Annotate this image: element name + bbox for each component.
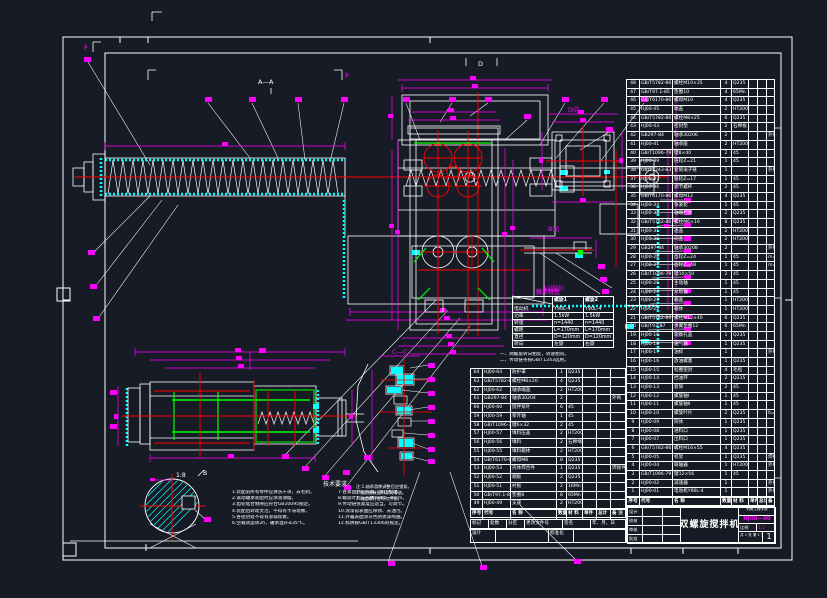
table-cell: HT200 xyxy=(732,106,749,114)
table-cell: HJ00-52 xyxy=(483,474,511,482)
table-cell xyxy=(749,262,758,270)
bom-l-header-qty: 数量 xyxy=(557,510,567,519)
table-row: 6GB/T5782-86螺栓M16×554Q235 xyxy=(627,444,774,453)
table-cell: 键12×56 xyxy=(673,471,721,479)
table-cell: 13 xyxy=(627,384,640,392)
table-cell xyxy=(758,176,767,184)
table-cell: 29 xyxy=(627,245,640,253)
table-cell: 45 xyxy=(567,422,583,430)
table-cell xyxy=(611,500,625,508)
table-cell: 密封垫 xyxy=(673,123,721,131)
table-row: 42GB297-84轴承302062外购 xyxy=(627,131,774,140)
table-cell xyxy=(767,341,774,349)
table-cell: 轴承端盖 xyxy=(511,387,557,395)
table-cell xyxy=(758,132,767,140)
table-cell: 63 xyxy=(471,378,483,386)
table-cell: 轴承30208 xyxy=(673,245,721,253)
table-cell xyxy=(749,271,758,279)
table-cell: 12 xyxy=(627,393,640,401)
table-cell: 8 xyxy=(721,219,732,227)
table-cell xyxy=(767,193,774,201)
bom-right-header: 序号 代号 名 称 数量 材 料 单件 总计 备 注 xyxy=(626,497,775,506)
table-cell: 57 xyxy=(471,430,483,438)
table-cell xyxy=(749,367,758,375)
table-cell xyxy=(758,236,767,244)
table-cell: 23 xyxy=(627,297,640,305)
table-cell: 4 xyxy=(721,80,732,88)
table-cell: 11 xyxy=(627,401,640,409)
table-cell xyxy=(749,228,758,236)
table-cell: 32 xyxy=(627,219,640,227)
table-cell xyxy=(758,297,767,305)
table-cell: 28 xyxy=(627,254,640,262)
table-cell xyxy=(767,297,774,305)
table-cell xyxy=(758,262,767,270)
table-cell: 47 xyxy=(627,89,640,97)
table-cell: 2 xyxy=(721,245,732,253)
table-cell: GB/T5782-86 xyxy=(640,115,673,123)
sign-design-label: 设计 xyxy=(471,530,496,542)
table-cell: HT200 xyxy=(567,430,583,438)
table-cell: 2 xyxy=(721,150,732,158)
table-cell: 透盖 xyxy=(673,228,721,236)
table-cell: 螺栓M12×40 xyxy=(673,315,721,323)
table-cell: Q235 xyxy=(567,465,583,473)
table-cell: HJ00-62 xyxy=(483,387,511,395)
rev-mark: 标记 xyxy=(471,520,489,528)
table-row: 34HJ00-34张紧轮145 xyxy=(627,201,774,210)
table-cell xyxy=(567,395,583,403)
table-cell: HJ00-30 xyxy=(640,236,673,244)
view-b-label: B向 xyxy=(548,224,559,233)
table-cell: 44 xyxy=(627,115,640,123)
table-cell: 55 xyxy=(471,448,483,456)
table-cell xyxy=(758,419,767,427)
table-cell xyxy=(749,419,758,427)
table-cell: 外购 xyxy=(767,245,774,253)
table-cell xyxy=(758,80,767,88)
table-cell: HJ00-43 xyxy=(640,123,673,131)
table-cell: HJ00-18 xyxy=(640,341,673,349)
table-cell xyxy=(749,202,758,210)
table-cell xyxy=(749,393,758,401)
table-cell: 2 xyxy=(721,184,732,192)
table-row: 61GB297-84轴承302042外购 xyxy=(471,394,625,403)
table-cell: 闷盖 xyxy=(673,236,721,244)
table-cell xyxy=(597,500,611,508)
table-cell: 22 xyxy=(627,306,640,314)
table-cell xyxy=(611,457,625,465)
table-row: 4HJ00-04联轴器1HT200外购 xyxy=(627,461,774,470)
table-row: 24HJ00-24从动轴145 xyxy=(627,288,774,297)
table-cell xyxy=(758,436,767,444)
table-cell: Q235 xyxy=(732,454,749,462)
table-cell xyxy=(767,306,774,314)
table-cell xyxy=(767,428,774,436)
table-cell xyxy=(758,315,767,323)
table-cell: 8 xyxy=(557,492,567,500)
table-cell: 链轮Z=21 xyxy=(673,158,721,166)
table-cell xyxy=(597,430,611,438)
table-cell xyxy=(767,384,774,392)
table-cell: 电动机Y90L-4 xyxy=(673,488,721,496)
table-cell xyxy=(758,219,767,227)
table-cell: 键8×40 xyxy=(673,150,721,158)
table-cell: 45 xyxy=(732,401,749,409)
table-row: 螺距L=170mmL=170mm xyxy=(513,326,613,333)
table-cell xyxy=(767,236,774,244)
table-cell xyxy=(597,474,611,482)
table-row: 33HJ00-33轴端挡圈2Q235 xyxy=(627,209,774,218)
bom-table-right: 48GB/T5782-86螺栓M10×354Q23547GB/T97.1-85垫… xyxy=(626,79,775,497)
table-cell: 53 xyxy=(471,465,483,473)
table-cell: 52 xyxy=(471,474,483,482)
table-cell: 螺旋叶片 xyxy=(673,410,721,418)
table-cell: HJ00-49 xyxy=(483,500,511,508)
table-cell: 4 xyxy=(721,367,732,375)
table-cell: 37 xyxy=(627,176,640,184)
table-cell: 链轮Z=17 xyxy=(673,176,721,184)
table-row: 29GB297-84轴承302082外购 xyxy=(627,244,774,253)
table-cell xyxy=(611,413,625,421)
table-cell: 2 xyxy=(557,387,567,395)
table-cell: 35 xyxy=(627,193,640,201)
table-cell xyxy=(749,184,758,192)
table-cell xyxy=(767,419,774,427)
table-cell: 石棉绳 xyxy=(567,439,583,447)
table-cell: 外购 xyxy=(767,167,774,175)
table-cell xyxy=(597,439,611,447)
table-row: 转向左旋右旋 xyxy=(513,340,613,347)
table-cell: m=3 xyxy=(767,254,774,262)
table-cell: GB/T1096-79 xyxy=(640,150,673,158)
table-cell: 1 xyxy=(721,471,732,479)
table-cell: 4 xyxy=(721,89,732,97)
table-cell xyxy=(749,375,758,383)
table-cell: 2 xyxy=(557,430,567,438)
table-cell: 2 xyxy=(721,228,732,236)
table-cell xyxy=(597,465,611,473)
table-cell: 51 xyxy=(471,483,483,491)
table-cell xyxy=(767,367,774,375)
table-cell xyxy=(758,210,767,218)
tech-header-screw2: 螺旋2 xyxy=(584,297,613,306)
table-cell: 箱体 xyxy=(673,306,721,314)
table-cell: GB/T6170-86 xyxy=(483,457,511,465)
table-cell xyxy=(749,158,758,166)
table-cell: 石棉板 xyxy=(732,123,749,131)
table-cell: HJ00-31 xyxy=(640,228,673,236)
table-cell: 左旋 xyxy=(553,341,584,347)
table-cell: HJ00-36 xyxy=(640,184,673,192)
table-cell: 2 xyxy=(557,395,567,403)
table-row: 38GB/T1243-83套筒滚子链1外购 xyxy=(627,166,774,175)
table-cell xyxy=(749,167,758,175)
table-cell: 5 xyxy=(627,454,640,462)
table-cell: 外购 xyxy=(767,488,774,496)
table-cell: 49 xyxy=(471,500,483,508)
table-cell: HJ00-51 xyxy=(483,483,511,491)
table-cell: HJ00-04 xyxy=(640,462,673,470)
table-cell: HJ00-28 xyxy=(640,254,673,262)
sign-standard-label: 标准化 xyxy=(549,530,574,542)
table-cell xyxy=(611,430,625,438)
table-cell xyxy=(732,480,749,488)
view-b-mark-label: B xyxy=(203,470,207,477)
table-cell: 46 xyxy=(627,97,640,105)
table-cell: 轴承座 xyxy=(673,141,721,149)
table-cell: 调节螺杆 xyxy=(673,184,721,192)
table-cell: HJ00-05 xyxy=(640,454,673,462)
table-cell xyxy=(583,492,597,500)
table-cell xyxy=(749,401,758,409)
table-cell xyxy=(749,289,758,297)
table-cell xyxy=(767,289,774,297)
gear-train xyxy=(420,130,490,334)
table-cell: 壳体焊合件 xyxy=(511,465,557,473)
table-row: 14HJ00-14挡油环2Q235 xyxy=(627,374,774,383)
table-cell: 外购 xyxy=(611,395,625,403)
table-cell: 18 xyxy=(627,341,640,349)
table-cell: 2 xyxy=(627,480,640,488)
table-cell: 箱盖 xyxy=(673,297,721,305)
table-cell xyxy=(767,141,774,149)
table-cell xyxy=(749,132,758,140)
bottom-centerlines xyxy=(122,372,356,458)
table-cell xyxy=(749,428,758,436)
table-cell: HJ00-64 xyxy=(483,369,511,377)
table-cell: 套筒 xyxy=(673,384,721,392)
table-cell xyxy=(611,448,625,456)
table-cell xyxy=(583,422,597,430)
table-cell: 45 xyxy=(567,413,583,421)
table-cell: 螺旋轴Ⅰ xyxy=(673,393,721,401)
table-row: 28HJ00-28齿轮Z=24145m=3 xyxy=(627,253,774,262)
table-cell: Q235 xyxy=(732,436,749,444)
table-cell xyxy=(758,141,767,149)
table-row: 47GB/T97.1-85垫圈10465Mn xyxy=(627,88,774,97)
table-cell: GB/T6170-86 xyxy=(640,97,673,105)
table-cell: 1 xyxy=(721,297,732,305)
table-cell: HJ00-56 xyxy=(483,439,511,447)
table-cell xyxy=(758,123,767,131)
table-cell xyxy=(758,150,767,158)
table-cell: HJ00-60 xyxy=(483,404,511,412)
table-cell xyxy=(597,448,611,456)
table-cell xyxy=(611,404,625,412)
table-cell xyxy=(767,401,774,409)
table-cell: 防护罩 xyxy=(511,369,557,377)
table-cell: 62 xyxy=(471,387,483,395)
table-cell: 45 xyxy=(732,271,749,279)
cad-sheet: { "labels": { "section_aa": "A—A", "view… xyxy=(0,0,827,598)
table-row: 49HJ00-49支座2HT200 xyxy=(471,499,625,508)
flange-centerlines xyxy=(546,126,620,196)
table-cell: 2 xyxy=(721,123,732,131)
signature-strip: 设计 标准化 xyxy=(470,529,626,543)
table-cell: 7 xyxy=(627,436,640,444)
table-cell: 8 xyxy=(557,457,567,465)
table-cell: 65Mn xyxy=(732,89,749,97)
table-cell: GB/T97.1-85 xyxy=(640,89,673,97)
table-row: 3GB/T1096-79键12×56145 xyxy=(627,470,774,479)
table-cell: 9 xyxy=(627,419,640,427)
note-line: 3.端盖螺钉应均匀拧紧。 xyxy=(356,496,412,502)
table-cell: HJ00-02 xyxy=(640,480,673,488)
table-cell: 1 xyxy=(721,488,732,496)
table-cell xyxy=(583,404,597,412)
table-cell: 61 xyxy=(471,395,483,403)
table-row: 27HJ00-27齿轮Z=48145m=3 xyxy=(627,261,774,270)
table-cell: HT200 xyxy=(732,306,749,314)
table-cell: 螺栓M6×16 xyxy=(673,219,721,227)
table-row: 16HJ00-16放油螺塞1Q235 xyxy=(627,357,774,366)
table-cell: 17 xyxy=(627,349,640,357)
table-cell: 桨叶轴 xyxy=(511,413,557,421)
table-cell: GB297-84 xyxy=(640,245,673,253)
table-cell: 2 xyxy=(721,375,732,383)
table-cell xyxy=(749,306,758,314)
table-row: 11HJ00-11螺旋轴Ⅱ145 xyxy=(627,400,774,409)
table-row: 41HJ00-41轴承座2HT200 xyxy=(627,140,774,149)
table-cell xyxy=(749,488,758,496)
table-cell xyxy=(583,439,597,447)
table-cell xyxy=(749,315,758,323)
table-cell: 齿轮Z=48 xyxy=(673,262,721,270)
table-row: 15HJ00-15毡圈密封4毛毡 xyxy=(627,366,774,375)
table-cell xyxy=(758,480,767,488)
table-cell xyxy=(583,378,597,386)
table-cell: GB297-84 xyxy=(640,132,673,140)
table-cell: 焊接件 xyxy=(611,465,625,473)
table-cell xyxy=(758,471,767,479)
table-cell xyxy=(749,323,758,331)
note-line: 二、传动链条按GB/T1243选用。 xyxy=(500,358,569,364)
table-cell xyxy=(758,184,767,192)
table-cell: 衬板 xyxy=(511,483,557,491)
table-cell: 65Mn xyxy=(567,492,583,500)
section-mark-brackets xyxy=(93,42,497,94)
table-cell: 出料口 xyxy=(673,436,721,444)
table-row: 21GB/T5782-86螺栓M12×406Q235 xyxy=(627,314,774,323)
table-cell: GB/T1096-79 xyxy=(483,422,511,430)
table-cell xyxy=(767,158,774,166)
table-cell: HJ00-13 xyxy=(640,384,673,392)
table-cell xyxy=(749,123,758,131)
table-cell xyxy=(749,254,758,262)
bom-left-header: 序号 代号 名 称 数量 材 料 单件 总计 备 注 xyxy=(470,509,626,518)
tech-header-blank xyxy=(513,297,553,306)
table-cell xyxy=(597,413,611,421)
table-cell xyxy=(611,483,625,491)
table-row: 转速n=1440n=1440 xyxy=(513,319,613,326)
belt-highlight xyxy=(414,143,494,300)
table-cell xyxy=(767,375,774,383)
view-d-label: D向 xyxy=(568,105,580,114)
table-cell: HJ00-01 xyxy=(640,488,673,496)
table-cell: 1 xyxy=(721,454,732,462)
tb-qty: 1 xyxy=(762,531,776,544)
table-cell xyxy=(732,245,749,253)
table-row: 43HJ00-43密封垫2石棉板 xyxy=(627,122,774,131)
table-cell: 轴端挡圈 xyxy=(673,210,721,218)
table-cell: Q235 xyxy=(732,410,749,418)
table-cell xyxy=(583,457,597,465)
table-cell: 27 xyxy=(627,262,640,270)
table-cell: 36 xyxy=(627,184,640,192)
table-cell: HJ00-39 xyxy=(640,158,673,166)
table-cell xyxy=(749,358,758,366)
table-cell: 1 xyxy=(557,369,567,377)
table-cell: HJ00-41 xyxy=(640,141,673,149)
table-cell: 6 xyxy=(721,315,732,323)
table-cell: 1 xyxy=(557,465,567,473)
table-row: 40GB/T1096-79键8×40245 xyxy=(627,149,774,158)
table-cell xyxy=(749,141,758,149)
note-line: 注:1.轴承游隙调整后应锁紧。 xyxy=(356,484,412,490)
table-cell: 1 xyxy=(721,167,732,175)
table-row: 17HJ00-17油标1外购 xyxy=(627,348,774,357)
table-cell: 右旋 xyxy=(584,341,613,347)
table-cell: GB/T5782-86 xyxy=(640,315,673,323)
table-cell: HJ00-16 xyxy=(640,358,673,366)
table-cell: 65Mn xyxy=(732,323,749,331)
table-cell: 螺栓M16×55 xyxy=(673,445,721,453)
table-cell: HJ00-24 xyxy=(640,289,673,297)
table-cell xyxy=(758,341,767,349)
table-cell: 填料箱体 xyxy=(511,448,557,456)
table-cell: HJ00-45 xyxy=(640,106,673,114)
table-cell: 40 xyxy=(627,150,640,158)
table-cell xyxy=(749,150,758,158)
table-cell: 焊接件 xyxy=(767,454,774,462)
rev-date: 年、月、日 xyxy=(591,520,625,528)
table-cell: 3 xyxy=(627,471,640,479)
table-cell xyxy=(758,280,767,288)
table-cell: 机架 xyxy=(673,454,721,462)
table-cell: 45 xyxy=(732,384,749,392)
table-cell: 1 xyxy=(721,176,732,184)
table-cell: 21 xyxy=(627,315,640,323)
view-main-assembly xyxy=(73,95,659,304)
table-cell: 套筒滚子链 xyxy=(673,167,721,175)
table-cell xyxy=(597,457,611,465)
table-cell xyxy=(597,404,611,412)
table-cell: HJ00-19 xyxy=(640,332,673,340)
table-cell: 1 xyxy=(721,419,732,427)
table-cell: 填料 xyxy=(511,439,557,447)
table-cell: 1 xyxy=(721,306,732,314)
table-row: 7HJ00-07出料口1Q235 xyxy=(627,435,774,444)
table-cell: HJ00-12 xyxy=(640,393,673,401)
table-row: 45HJ00-45端盖2HT200 xyxy=(627,105,774,114)
table-cell: 螺栓M10×35 xyxy=(673,80,721,88)
table-cell xyxy=(749,332,758,340)
table-cell: 45 xyxy=(732,262,749,270)
table-cell xyxy=(767,315,774,323)
table-cell: 观察孔盖 xyxy=(673,332,721,340)
table-cell xyxy=(758,306,767,314)
table-row: 36HJ00-36调节螺杆245 xyxy=(627,183,774,192)
table-cell: 键10×50 xyxy=(673,271,721,279)
table-cell: Q235 xyxy=(732,428,749,436)
table-cell xyxy=(767,89,774,97)
table-cell: 14 xyxy=(627,375,640,383)
table-cell xyxy=(732,488,749,496)
table-cell: 2 xyxy=(557,483,567,491)
table-row: 22HJ00-22箱体1HT200 xyxy=(627,305,774,314)
bom-l-header-remark: 备 注 xyxy=(611,510,625,519)
